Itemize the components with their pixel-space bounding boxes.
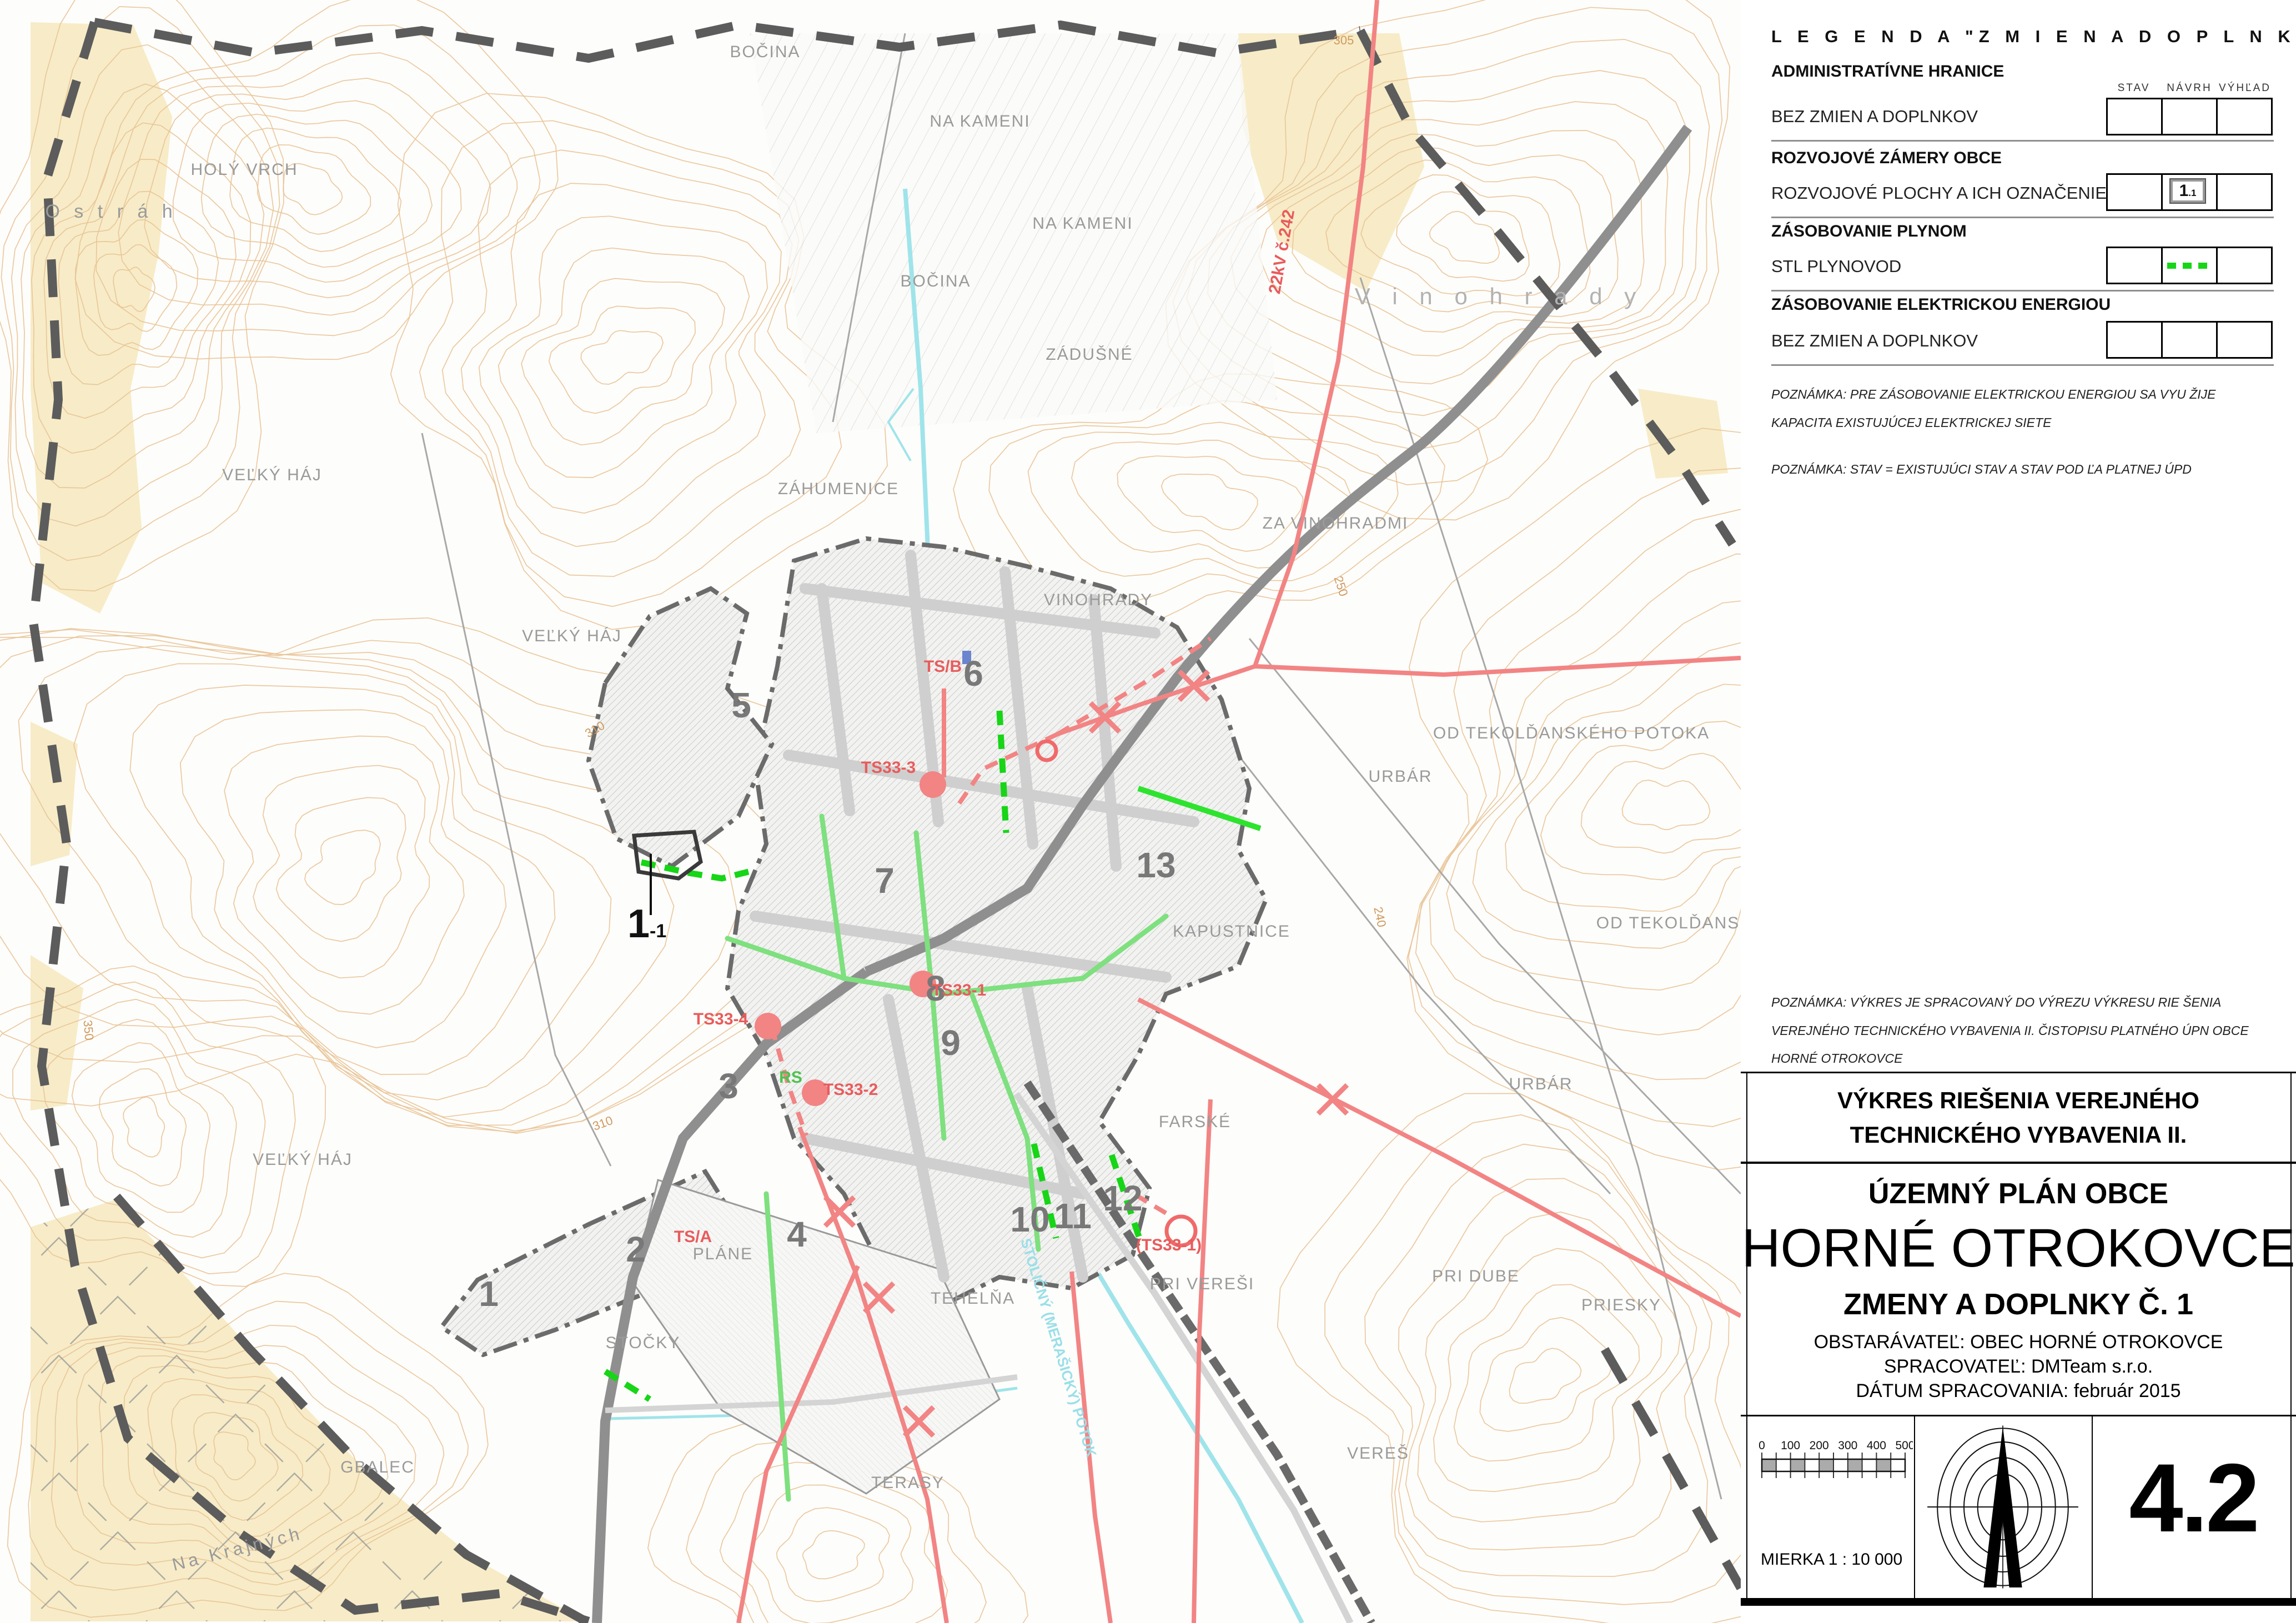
legend-panel: L E G E N D A "Z M I E N A D O P L N K O… [1741,0,2296,1623]
box-stav [2108,248,2163,283]
place-label: OD TEKOLĎANSK [1596,914,1741,932]
client-line: OBSTARÁVATEĽ: OBEC HORNÉ OTROKOVCE [1741,1331,2296,1353]
note-stav: POZNÁMKA: STAV = EXISTUJÚCI STAV A STAV … [1771,455,2265,484]
scale-tick-label: 200 [1810,1439,1829,1452]
col-stav: STAV [2106,82,2162,94]
legend-section-rozvoj-heading: ROZVOJOVÉ ZÁMERY OBCE [1771,149,2002,168]
scale-bar: 0100200300400500 [1757,1433,1913,1499]
electric-label: TS/B [924,657,962,676]
contour-elevation-label: 350 [81,1019,96,1041]
col-vyhlad: VÝHĽAD [2217,82,2273,94]
area-number-label: 4 [787,1214,807,1254]
area-number-label: 5 [731,685,751,725]
place-label: TERASY [871,1474,944,1492]
col-navrh: NÁVRH [2162,82,2217,94]
north-arrow [1925,1417,2081,1597]
place-label: BOČINA [730,42,800,61]
area-number-label: 3 [719,1066,738,1106]
place-label: KAPUSTNICE [1173,922,1290,941]
legend-section-admin-heading: ADMINISTRATÍVNE HRANICE [1771,62,2004,81]
place-label: GBALEC [340,1458,415,1476]
box-navrh [2163,323,2218,357]
titleblock-bottom-bar [1741,1598,2296,1606]
electric-label: TS33-1 [932,981,986,999]
drawing-title-line2: TECHNICKÉHO VYBAVENIA II. [1741,1122,2296,1148]
place-label: PRI DUBE [1432,1267,1520,1285]
box-navrh: 1.1 [2163,175,2218,209]
place-label: URBÁR [1368,767,1432,786]
scale-tick-label: 100 [1781,1439,1800,1452]
area-number-label: 6 [963,654,983,694]
vineyard-rows [750,33,1277,433]
legend-section-plyn-heading: ZÁSOBOVANIE PLYNOM [1771,222,1967,241]
date-line: DÁTUM SPRACOVANIA: február 2015 [1741,1380,2296,1402]
plan-sheet: BOČINANA KAMENINA KAMENIBOČINAZÁDUŠNÉHOL… [0,0,2296,1623]
amendment-title: ZMENY A DOPLNKY Č. 1 [1741,1287,2296,1321]
box-navrh [2163,248,2218,283]
box-navrh [2163,99,2218,134]
legend-row-rozvoj-boxes: 1.1 [2106,173,2273,211]
note-vykres: POZNÁMKA: VÝKRES JE SPRACOVANÝ DO VÝREZU… [1771,988,2282,1073]
place-label: NA KAMENI [1032,214,1133,233]
place-label: URBÁR [1509,1075,1572,1093]
place-label: VEĽKÝ HÁJ [222,466,322,484]
legend-row-admin-label: BEZ ZMIEN A DOPLNKOV [1771,107,1978,127]
place-label: V i n o h r a d y [1355,283,1644,309]
legend-row-rozvoj-label: ROZVOJOVÉ PLOCHY A ICH OZNAČENIE [1771,183,2107,203]
area-number-label: 12 [1103,1178,1142,1218]
area-number-label: 13 [1136,845,1175,885]
place-label: HOLÝ VRCH [190,160,298,179]
place-label: VEĽKÝ HÁJ [253,1150,353,1169]
area-number-label: 1 [479,1274,499,1314]
electric-label: TS33-2 [823,1081,878,1099]
legend-row-plyn-label: STL PLYNOVOD [1771,257,1901,277]
box-vyhlad [2218,248,2271,283]
box-stav [2108,175,2163,209]
place-label: PLÁNE [693,1245,753,1263]
place-label: PRI VEREŠI [1150,1274,1254,1293]
area-number-label: 11 [1054,1196,1092,1236]
place-label: BOČINA [900,272,971,290]
map-canvas: BOČINANA KAMENINA KAMENIBOČINAZÁDUŠNÉHOL… [0,0,1741,1623]
box-vyhlad [2218,99,2271,134]
contour-elevation-label: 305 [1334,33,1354,47]
place-label: TEHELŇA [931,1289,1015,1308]
place-label: STOČKY [606,1333,681,1352]
scale-tick-label: 400 [1867,1439,1886,1452]
place-label: VEĽKÝ HÁJ [522,627,622,645]
note-electric: POZNÁMKA: PRE ZÁSOBOVANIE ELEKTRICKOU EN… [1771,380,2265,436]
place-label: NA KAMENI [930,112,1030,130]
municipality-name: HORNÉ OTROKOVCE [1741,1217,2296,1279]
legend-section-elektro-heading: ZÁSOBOVANIE ELEKTRICKOU ENERGIOU [1771,295,2111,314]
legend-row-plyn-boxes [2106,247,2273,284]
place-label: O s t r á h [45,201,177,222]
scale-caption: MIERKA 1 : 10 000 [1761,1550,1902,1569]
scale-tick-label: 500 [1895,1439,1913,1452]
drawing-title-line1: VÝKRES RIEŠENIA VEREJNÉHO [1741,1087,2296,1114]
scale-tick-label: 0 [1759,1439,1765,1452]
box-stav [2108,323,2163,357]
place-label: ZA VINOHRADMI [1263,514,1409,532]
scale-tick-label: 300 [1838,1439,1857,1452]
author-line: SPRACOVATEĽ: DMTeam s.r.o. [1741,1356,2296,1378]
legend-row-admin-boxes [2106,98,2273,135]
sheet-number: 4.2 [2096,1443,2290,1554]
legend-column-headers: STAV NÁVRH VÝHĽAD [2106,82,2273,94]
box-vyhlad [2218,323,2271,357]
box-stav [2108,99,2163,134]
legend-row-elektro-boxes [2106,321,2273,359]
area-number-label: 9 [941,1023,961,1063]
place-label: PRIESKY [1581,1296,1661,1314]
place-label: VEREŠ [1347,1444,1409,1463]
area-1-1-symbol: 1.1 [2171,179,2205,203]
electric-label: TS33-3 [861,758,916,777]
place-label: VINOHRADY [1044,591,1153,609]
place-label: ZÁDUŠNÉ [1046,345,1133,364]
place-label: FARSKÉ [1159,1113,1231,1131]
electric-label: TS33-4 [694,1010,748,1028]
electric-label: (TS33-1) [1136,1236,1202,1254]
area-number-label: 10 [1010,1199,1049,1239]
box-vyhlad [2218,175,2271,209]
place-label: OD TEKOLĎANSKÉHO POTOKA [1433,724,1710,742]
place-label: ZÁHUMENICE [778,480,899,498]
gas-label: RS [779,1068,802,1087]
doc-type: ÚZEMNÝ PLÁN OBCE [1741,1177,2296,1210]
electric-label: TS/A [674,1228,712,1246]
legend-row-elektro-label: BEZ ZMIEN A DOPLNKOV [1771,331,1978,351]
area-number-label: 2 [626,1229,646,1269]
stl-plynovod-symbol [2167,263,2213,269]
legend-title: L E G E N D A "Z M I E N A D O P L N K O… [1771,27,2296,47]
area-number-label: 7 [875,861,895,901]
